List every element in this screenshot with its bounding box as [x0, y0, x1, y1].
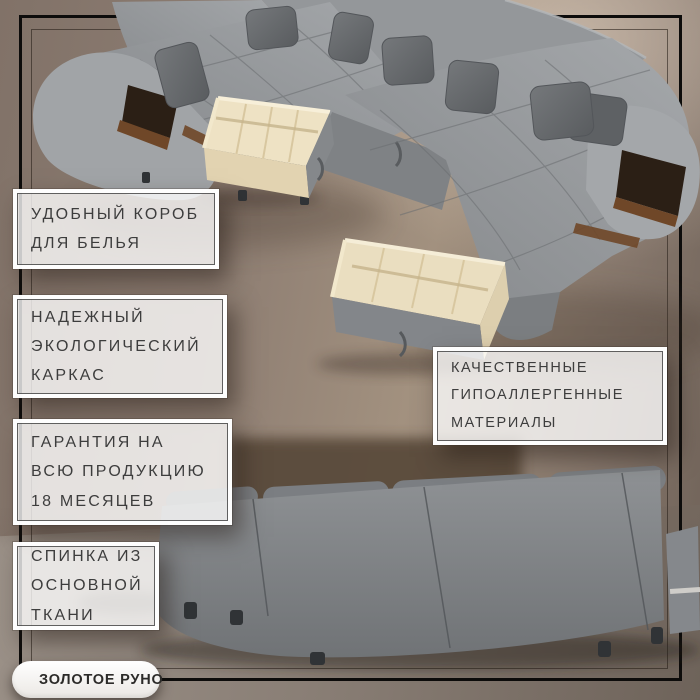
callout-line: КАРКАС: [31, 361, 209, 390]
callout-line: КАЧЕСТВЕННЫЕ: [451, 355, 649, 383]
callout-line: НАДЕЖНЫЙ: [31, 303, 209, 332]
brand-name: ЗОЛОТОЕ РУНО: [39, 672, 164, 688]
callout-frame: КАЧЕСТВЕННЫЕ ГИПОАЛЛЕРГЕННЫЕ МАТЕРИАЛЫ: [437, 351, 663, 441]
brand-badge: ЗОЛОТОЕ РУНО: [12, 661, 160, 698]
callout-eco-frame: НАДЕЖНЫЙ ЭКОЛОГИЧЕСКИЙ КАРКАС: [13, 295, 227, 398]
callout-line: СПИНКА ИЗ: [31, 542, 141, 571]
open-drawer-left: [204, 98, 334, 198]
callout-backrest-fabric: СПИНКА ИЗ ОСНОВНОЙ ТКАНИ: [13, 542, 159, 630]
callout-line: МАТЕРИАЛЫ: [451, 410, 649, 438]
callout-line: ГИПОАЛЛЕРГЕННЫЕ: [451, 382, 649, 410]
callout-line: ДЛЯ БЕЛЬЯ: [31, 229, 201, 258]
callout-line: ЭКОЛОГИЧЕСКИЙ: [31, 332, 209, 361]
callout-frame: СПИНКА ИЗ ОСНОВНОЙ ТКАНИ: [17, 546, 155, 626]
callout-laundry-storage: УДОБНЫЙ КОРОБ ДЛЯ БЕЛЬЯ: [13, 189, 219, 269]
callout-warranty: ГАРАНТИЯ НА ВСЮ ПРОДУКЦИЮ 18 МЕСЯЦЕВ: [13, 419, 232, 525]
callout-line: 18 МЕСЯЦЕВ: [31, 487, 214, 516]
callout-line: ОСНОВНОЙ: [31, 571, 141, 600]
callout-frame: ГАРАНТИЯ НА ВСЮ ПРОДУКЦИЮ 18 МЕСЯЦЕВ: [17, 423, 228, 521]
callout-line: ВСЮ ПРОДУКЦИЮ: [31, 457, 214, 486]
callout-frame: УДОБНЫЙ КОРОБ ДЛЯ БЕЛЬЯ: [17, 193, 215, 265]
product-banner: УДОБНЫЙ КОРОБ ДЛЯ БЕЛЬЯ НАДЕЖНЫЙ ЭКОЛОГИ…: [0, 0, 700, 700]
callout-line: УДОБНЫЙ КОРОБ: [31, 200, 201, 229]
callout-materials: КАЧЕСТВЕННЫЕ ГИПОАЛЛЕРГЕННЫЕ МАТЕРИАЛЫ: [433, 347, 667, 445]
callout-frame: НАДЕЖНЫЙ ЭКОЛОГИЧЕСКИЙ КАРКАС: [17, 299, 223, 394]
callout-line: ТКАНИ: [31, 601, 141, 630]
callout-line: ГАРАНТИЯ НА: [31, 428, 214, 457]
